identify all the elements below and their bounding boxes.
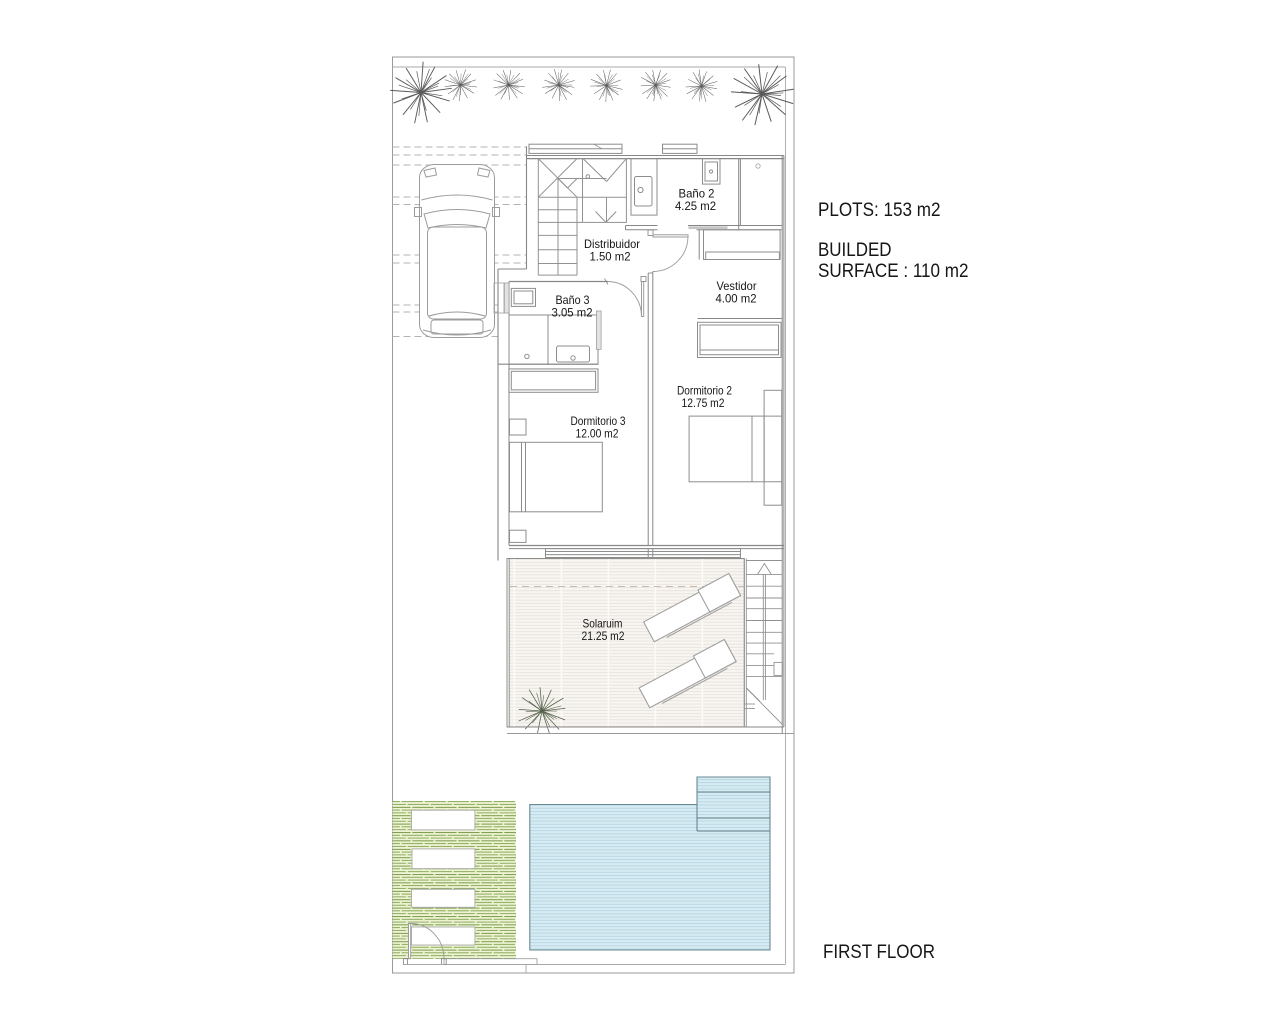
svg-text:21.25 m2: 21.25 m2 <box>582 629 625 643</box>
svg-text:12.75 m2: 12.75 m2 <box>682 396 725 410</box>
svg-text:BUILDED: BUILDED <box>818 240 892 261</box>
svg-text:3.05 m2: 3.05 m2 <box>552 306 593 320</box>
svg-text:12.00 m2: 12.00 m2 <box>576 427 619 441</box>
svg-text:4.00 m2: 4.00 m2 <box>716 292 757 306</box>
svg-text:FIRST FLOOR: FIRST FLOOR <box>823 942 935 963</box>
svg-text:1.50 m2: 1.50 m2 <box>590 250 631 264</box>
svg-text:PLOTS: 153 m2: PLOTS: 153 m2 <box>818 200 941 221</box>
svg-text:SURFACE : 110 m2: SURFACE : 110 m2 <box>818 261 969 282</box>
svg-text:4.25 m2: 4.25 m2 <box>675 199 716 213</box>
